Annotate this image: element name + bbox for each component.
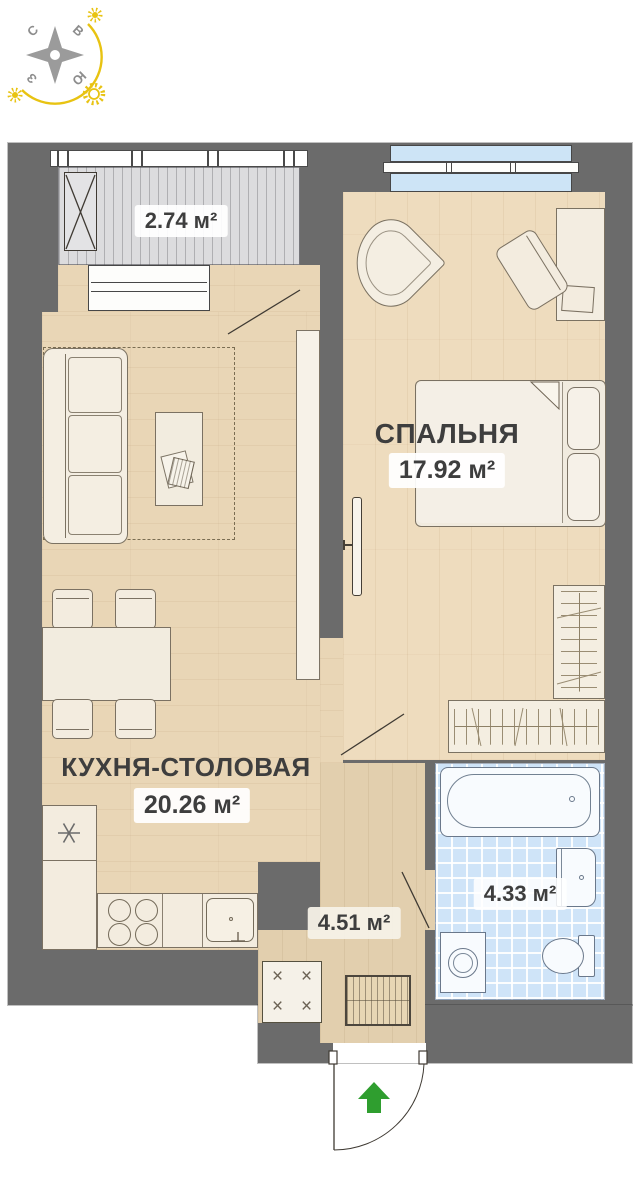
basin-drain: [579, 875, 584, 880]
tall-cabinet: [296, 330, 320, 680]
compass-star-center: [50, 50, 60, 60]
window-mullion: [446, 163, 452, 172]
railing-post: [207, 151, 219, 166]
washing-machine: [440, 932, 486, 993]
stove-burner: [135, 923, 158, 946]
kitchen-area-badge: 20.26 м²: [134, 788, 250, 823]
bathtub-drain: [569, 796, 575, 802]
dining-chair: [52, 589, 93, 629]
dining-chair: [52, 699, 93, 739]
sun-icon-large: [85, 85, 103, 103]
kitchen-sink: [206, 898, 254, 942]
bedroom-window-inner-glazing: [390, 173, 572, 192]
railing-post: [283, 151, 295, 166]
closet-cross-icon: ×: [264, 963, 290, 991]
toilet-bowl: [542, 938, 584, 974]
entry-door: [329, 1051, 427, 1150]
sofa-backrest: [44, 354, 66, 538]
dining-chair: [115, 699, 156, 739]
bedroom-area-badge: 17.92 м²: [389, 453, 505, 488]
bathroom-doorway-floor: [425, 870, 435, 930]
bed-pillow: [567, 453, 600, 521]
balcony-storage-cabinet: [64, 172, 97, 251]
kitchen-counter-left: [42, 860, 97, 950]
dining-table: [42, 627, 171, 701]
bed-pillow: [567, 387, 600, 450]
railing-post: [131, 151, 143, 166]
bedroom-label: СПАЛЬНЯ: [375, 418, 520, 450]
bedroom-window-frame: [383, 162, 579, 173]
stove-burner: [108, 899, 131, 922]
compass-north-label: С: [24, 22, 41, 40]
chair-backrest: [56, 591, 89, 599]
stove: [104, 895, 161, 946]
closet-cross-icon: ×: [293, 963, 319, 991]
stove-burner: [108, 923, 131, 946]
washing-machine-drum-inner: [453, 953, 473, 973]
compass-east-label: В: [70, 22, 87, 39]
sofa-cushion: [68, 415, 122, 473]
sofa: [43, 348, 128, 544]
chair-backrest: [56, 729, 89, 737]
fridge: [42, 805, 97, 861]
compass-south-label: Ю: [69, 68, 89, 88]
bedroom-door-handle: [343, 540, 345, 550]
chair-backrest: [119, 591, 152, 599]
bedroom-window-outer-glazing: [390, 145, 572, 162]
compass-west-label: З: [24, 70, 40, 86]
railing-post: [57, 151, 69, 166]
counter-divider: [202, 894, 203, 947]
entry-arrow-icon: [358, 1082, 390, 1113]
doormat: [345, 975, 411, 1026]
bedroom-door-leaf: [352, 497, 362, 596]
entry-opening: [333, 1043, 426, 1063]
bedroom-door-handle: [344, 544, 353, 546]
living-window: [88, 265, 210, 311]
bedroom-doorway-floor: [320, 638, 343, 763]
wardrobe-vertical: [553, 585, 605, 699]
kitchen-counter-bottom: [97, 893, 258, 948]
closet-cross-icon: ×: [264, 993, 290, 1021]
sun-icon: [90, 10, 101, 21]
hallway-closet: × × × ×: [262, 961, 322, 1023]
sun-icon: [10, 90, 21, 101]
floor-plan-page: × × × ×: [0, 0, 639, 1188]
entry-door-arc: [334, 1064, 424, 1150]
sofa-cushion: [68, 475, 122, 535]
chair-backrest: [119, 729, 152, 737]
hallway-area-badge: 4.51 м²: [308, 907, 401, 939]
magazine: [167, 457, 195, 489]
kitchen-label: КУХНЯ-СТОЛОВАЯ: [61, 752, 311, 783]
window-mullion: [510, 163, 516, 172]
bathroom-area-badge: 4.33 м²: [474, 878, 567, 910]
compass: С В З Ю: [2, 2, 108, 108]
coffee-table: [155, 412, 203, 506]
sofa-cushion: [68, 357, 122, 413]
bathtub: [440, 767, 600, 837]
balcony-railing: [50, 150, 308, 167]
balcony-area-badge: 2.74 м²: [135, 205, 228, 237]
sink-drain: [229, 917, 233, 921]
dining-chair: [115, 589, 156, 629]
wardrobe-horizontal: [448, 700, 605, 753]
living-window-sash: [91, 282, 207, 292]
stove-burner: [135, 899, 158, 922]
counter-divider: [162, 894, 163, 947]
closet-cross-icon: ×: [293, 993, 319, 1021]
